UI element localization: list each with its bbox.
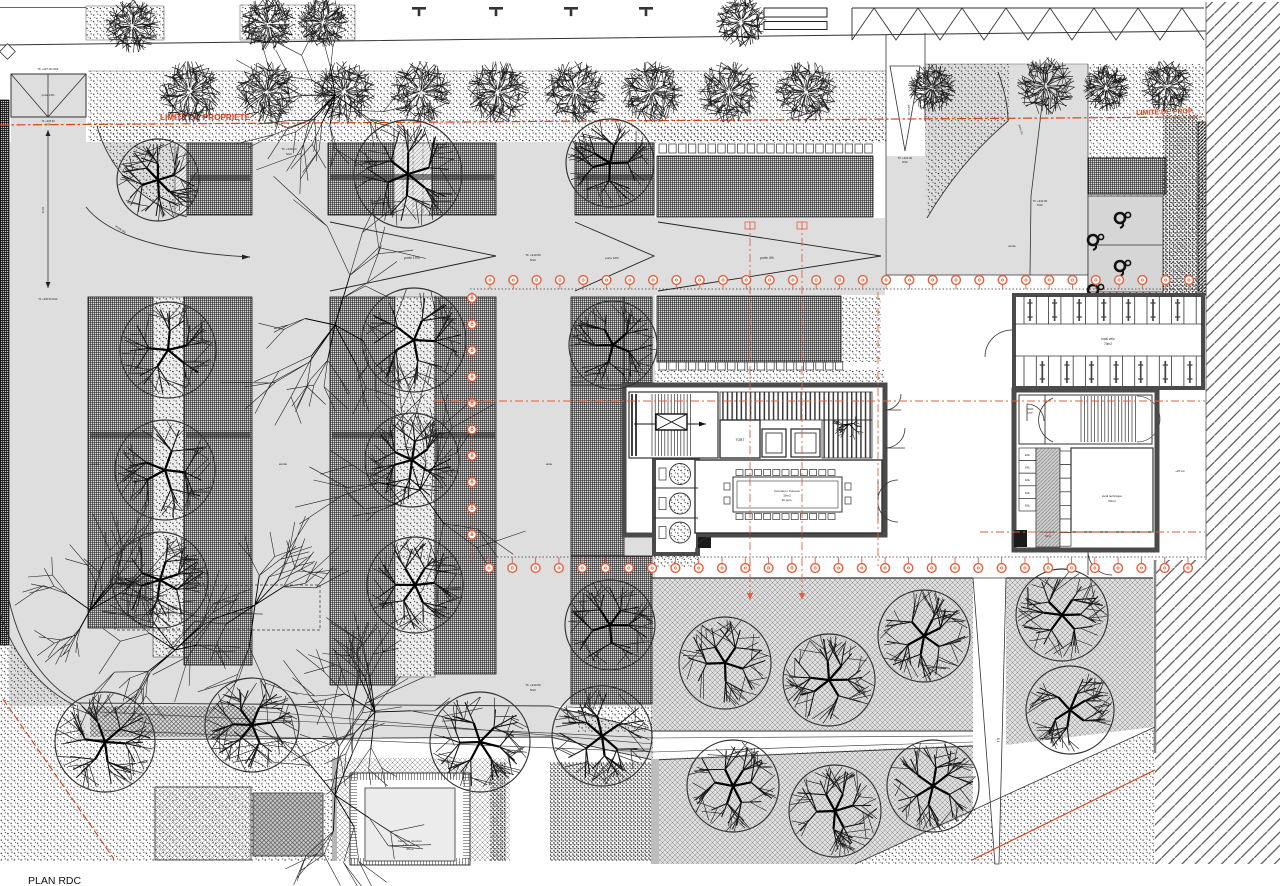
svg-text:70m2: 70m2 bbox=[1104, 342, 1112, 346]
svg-text:porte 10%: porte 10% bbox=[605, 256, 619, 260]
svg-text:local technique: local technique bbox=[1102, 494, 1122, 498]
svg-text:amide: amide bbox=[279, 462, 288, 466]
svg-text:NGF: NGF bbox=[902, 160, 908, 164]
svg-text:NGF: NGF bbox=[1037, 203, 1043, 207]
svg-text:30m2: 30m2 bbox=[783, 494, 791, 498]
svg-text:50m2: 50m2 bbox=[1108, 499, 1116, 503]
svg-text:aisle: aisle bbox=[546, 462, 553, 466]
svg-text:TF +340.50: TF +340.50 bbox=[525, 683, 541, 687]
svg-text:local: local bbox=[1028, 412, 1033, 415]
svg-text:NGF: NGF bbox=[530, 688, 537, 692]
svg-text:41.00: 41.00 bbox=[41, 206, 45, 213]
svg-text:porte 14%: porte 14% bbox=[42, 93, 55, 97]
svg-text:+25 m2: +25 m2 bbox=[1175, 469, 1185, 473]
svg-text:local poubelle: local poubelle bbox=[1041, 531, 1056, 534]
svg-text:TF +338.00: TF +338.00 bbox=[281, 147, 297, 151]
svg-text:8.1: 8.1 bbox=[996, 738, 1000, 743]
svg-text:amide: amide bbox=[1008, 244, 1016, 248]
svg-text:PLAN RDC: PLAN RDC bbox=[28, 875, 82, 886]
svg-text:LIMITE DE PROPRIETE: LIMITE DE PROPRIETE bbox=[160, 113, 251, 122]
svg-text:NGF: NGF bbox=[530, 258, 537, 262]
svg-text:NGF: NGF bbox=[286, 152, 293, 156]
svg-text:ENL: ENL bbox=[1025, 453, 1031, 457]
svg-text:ENL: ENL bbox=[1025, 466, 1031, 470]
svg-text:amide: amide bbox=[91, 462, 100, 466]
svg-text:TF +337.00 NGF: TF +337.00 NGF bbox=[37, 67, 58, 71]
svg-text:Végétalisé: Végétalisé bbox=[570, 380, 584, 384]
svg-text:30m2: 30m2 bbox=[1045, 535, 1052, 538]
svg-text:porte 2%: porte 2% bbox=[907, 105, 911, 116]
svg-text:TF +340.50: TF +340.50 bbox=[525, 253, 541, 257]
svg-text:local vélo: local vélo bbox=[1101, 337, 1115, 341]
svg-text:ENL: ENL bbox=[1025, 478, 1031, 482]
svg-text:40 pers.: 40 pers. bbox=[782, 498, 793, 502]
svg-text:TF +336.50 NGF: TF +336.50 NGF bbox=[38, 297, 58, 301]
svg-text:TF +336.30: TF +336.30 bbox=[41, 119, 55, 123]
svg-text:formation / bureaux: formation / bureaux bbox=[774, 489, 800, 493]
svg-text:ENL: ENL bbox=[1025, 491, 1031, 495]
svg-text:TGBT: TGBT bbox=[735, 438, 744, 442]
svg-text:porte 4%: porte 4% bbox=[760, 256, 774, 260]
svg-text:ENL: ENL bbox=[1025, 503, 1031, 507]
